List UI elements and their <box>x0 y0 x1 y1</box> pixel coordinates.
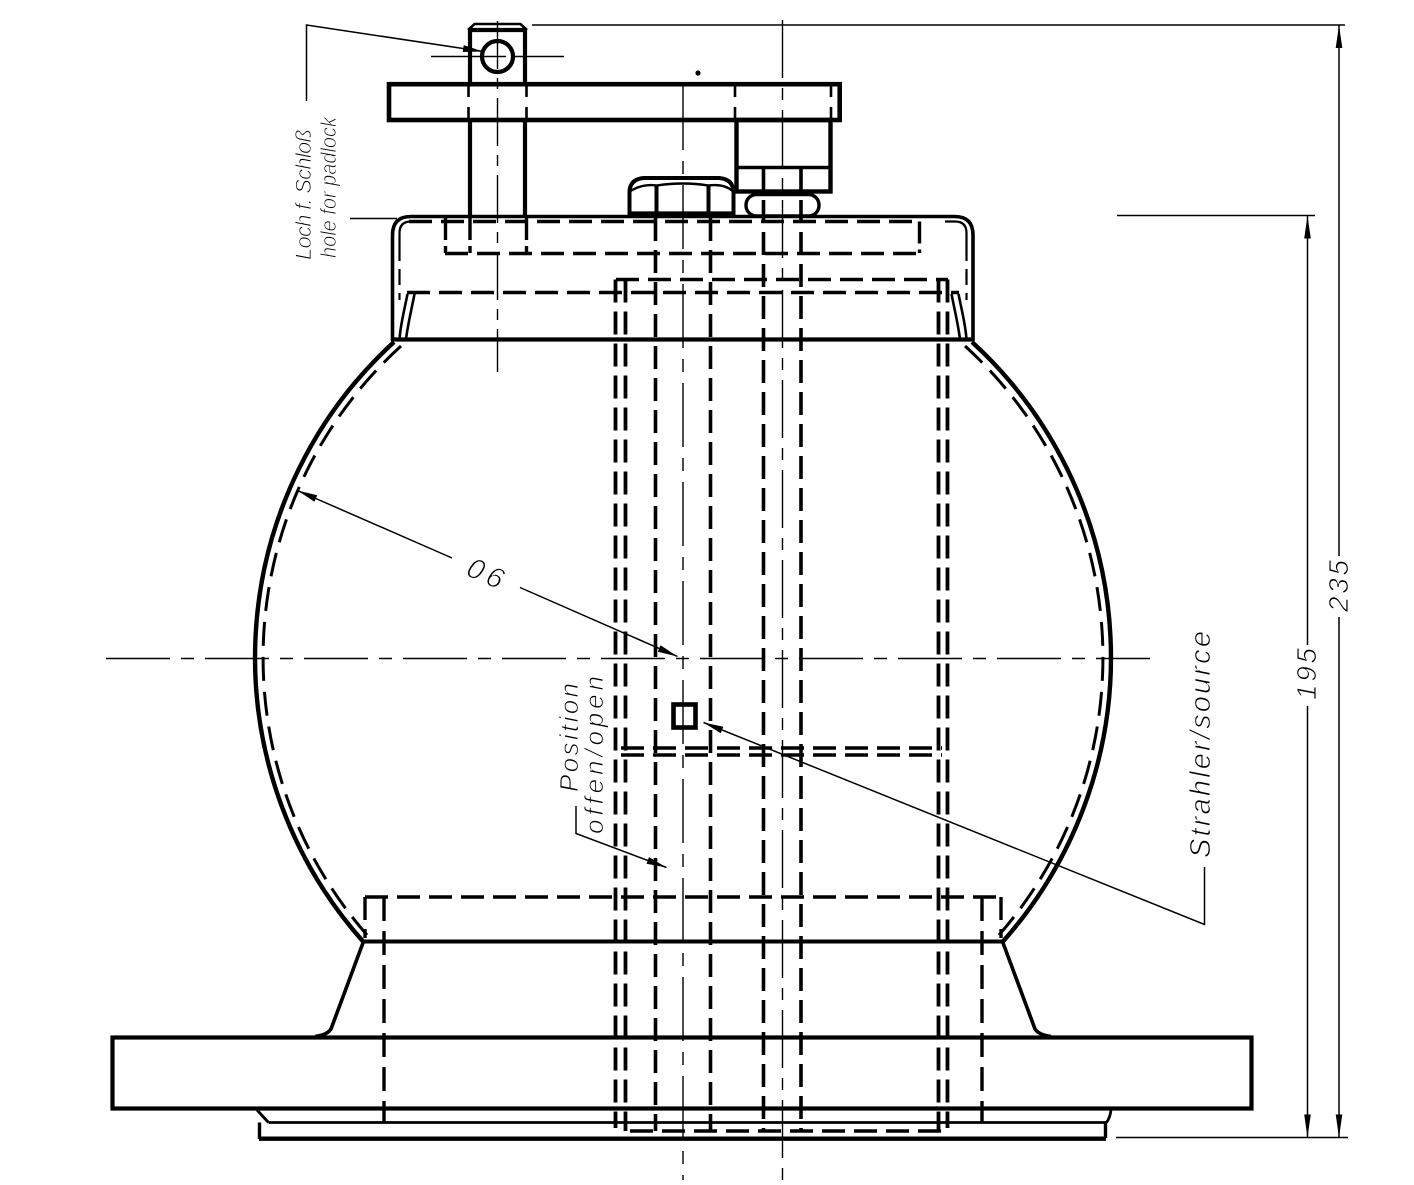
svg-text:195: 195 <box>1291 648 1322 700</box>
svg-text:90: 90 <box>464 551 511 595</box>
svg-text:235: 235 <box>1323 560 1354 613</box>
svg-text:offen/open: offen/open <box>579 676 609 834</box>
svg-text:Loch f. Schloß: Loch f. Schloß <box>291 129 316 260</box>
svg-text:hole for padlock: hole for padlock <box>316 116 341 258</box>
svg-text:Strahler/source: Strahler/source <box>1185 631 1217 858</box>
